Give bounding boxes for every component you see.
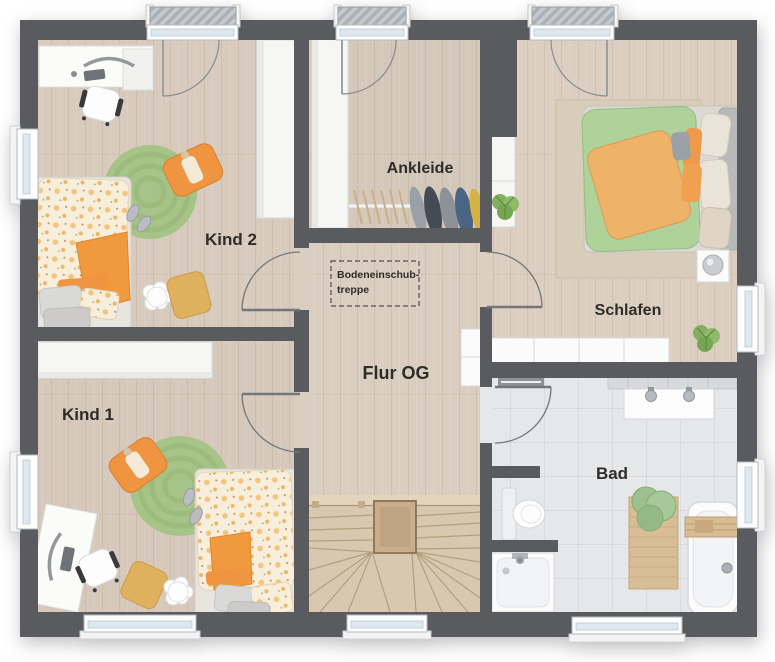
attic-hatch-label-line2: treppe: [337, 284, 369, 296]
wall-toilet-niche: [492, 540, 558, 552]
window-kind2-left: [10, 126, 38, 204]
window-stairs-bottom: [343, 615, 431, 639]
room-label-bad: Bad: [596, 464, 628, 483]
roller-shutter: [150, 7, 236, 25]
wall-interior: [38, 327, 294, 341]
doorway-bad: [480, 387, 492, 443]
wall-interior: [294, 310, 309, 392]
desk-extension: [123, 49, 153, 90]
pillow-gray: [671, 131, 692, 161]
pillow: [697, 112, 732, 158]
window-schlafen-right: [737, 283, 765, 355]
wall-chimney-block: [480, 40, 517, 137]
lamp: [703, 255, 723, 275]
room-label-kind1: Kind 1: [62, 405, 114, 424]
stair-post: [312, 501, 319, 508]
window-bad-right: [737, 459, 765, 531]
wall-interior: [309, 228, 480, 243]
wall-interior: [294, 40, 309, 248]
floorplan-drawing: Bodeneinschub- treppe Kind 2 Kind 1 Ankl…: [0, 0, 775, 662]
wall-interior: [294, 448, 309, 612]
pillow: [698, 159, 731, 211]
stair-post: [358, 501, 365, 508]
pillow-orange: [681, 163, 703, 202]
doorway-kind2: [294, 248, 309, 310]
nightstand: [697, 250, 729, 282]
roller-shutter: [338, 7, 406, 25]
sideboard: [489, 338, 669, 363]
roller-shutter: [532, 7, 614, 25]
doorway-kind1: [294, 392, 309, 448]
wardrobe-shade: [257, 40, 264, 218]
room-label-schlafen: Schlafen: [595, 302, 662, 319]
wardrobe-shade: [312, 38, 318, 228]
wall-toilet-niche: [492, 466, 540, 478]
drain: [503, 568, 510, 575]
window-kind1-bottom: [80, 615, 200, 639]
window-bad-bottom: [569, 617, 685, 642]
bathtub: [685, 502, 740, 614]
shower: [492, 553, 554, 612]
bed: [195, 469, 297, 622]
doorway-schlafen: [480, 252, 492, 307]
wall-interior: [480, 443, 492, 612]
towel-rail: [498, 378, 544, 386]
room-flur: [461, 329, 483, 386]
floorplan-page: Bodeneinschub- treppe Kind 2 Kind 1 Ankl…: [0, 0, 775, 662]
wardrobe-shade: [38, 372, 212, 378]
staircase: [309, 495, 480, 612]
room-label-kind2: Kind 2: [205, 230, 257, 249]
bed: [34, 177, 131, 331]
wall-outer-left: [20, 20, 38, 637]
pillow: [698, 207, 732, 250]
wall-interior: [480, 362, 737, 378]
tub-faucet: [722, 563, 732, 573]
attic-hatch-label-line1: Bodeneinschub-: [337, 269, 420, 281]
stair-newel-inner: [380, 507, 410, 547]
window-kind1-left: [10, 452, 38, 532]
room-label-ankleide: Ankleide: [387, 160, 454, 177]
double-bed: [582, 106, 738, 252]
mouse: [71, 71, 77, 77]
room-label-flur: Flur OG: [363, 363, 430, 383]
